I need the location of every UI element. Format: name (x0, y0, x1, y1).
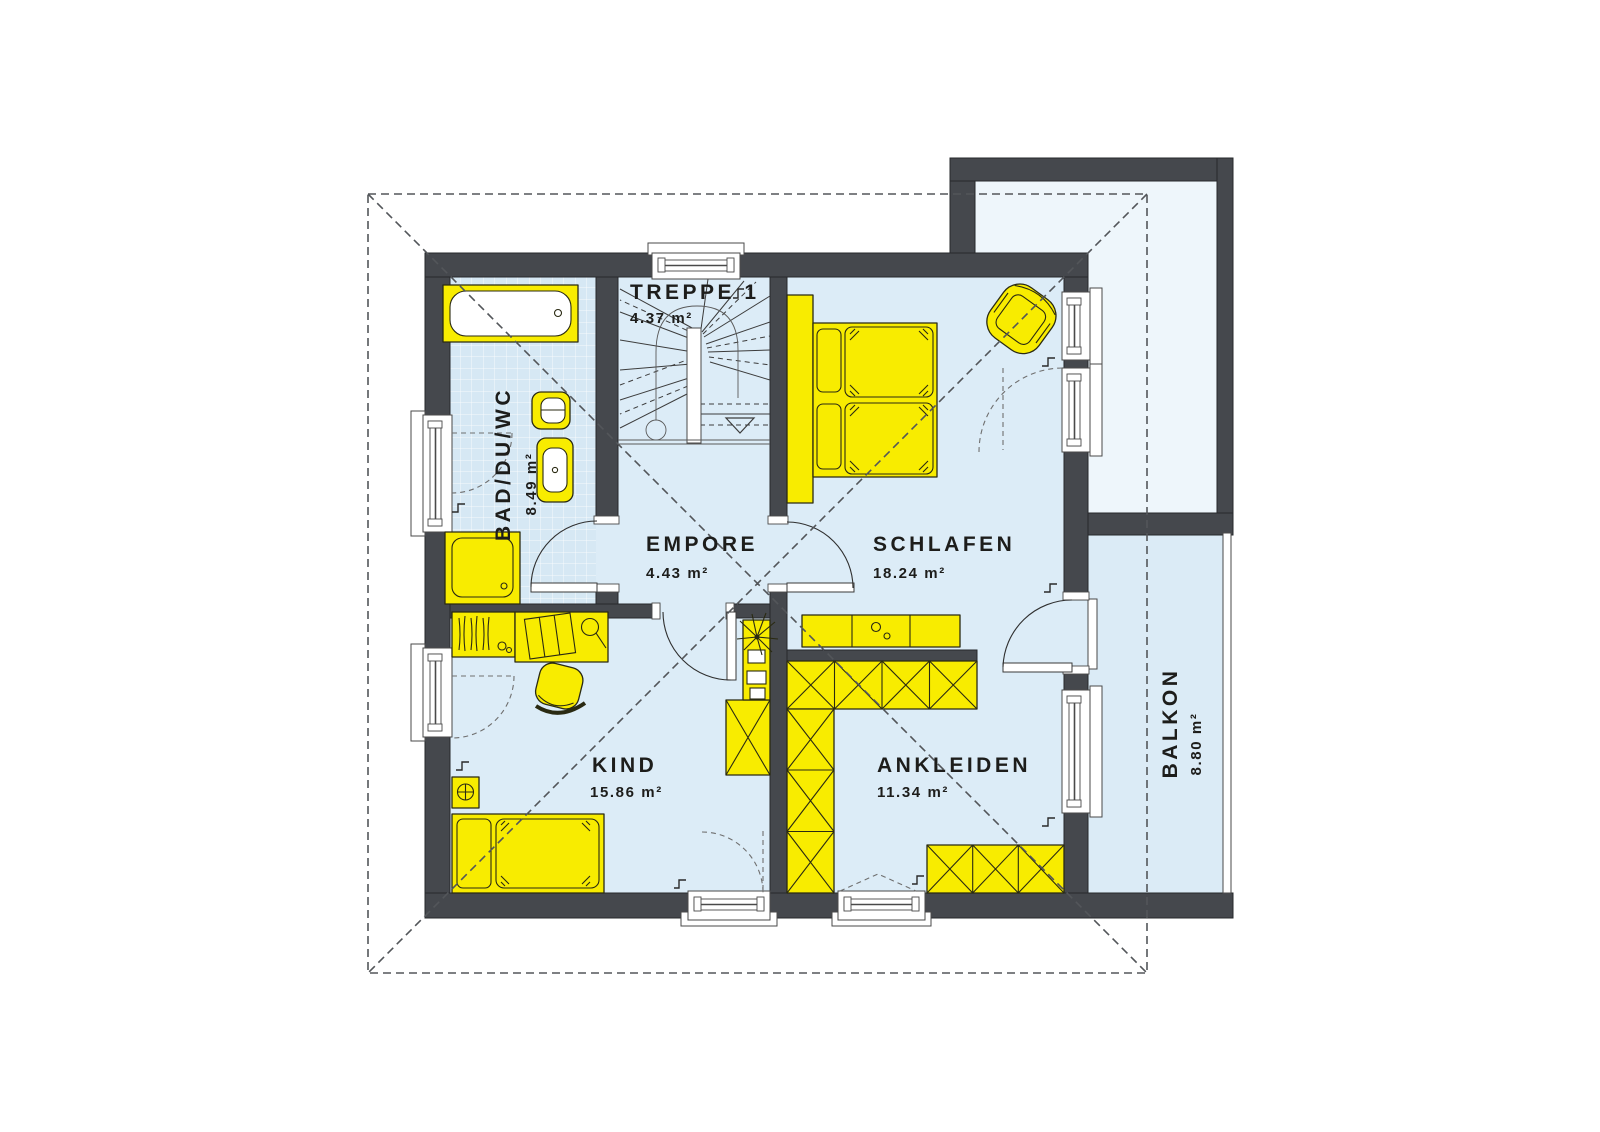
window-stairs-top (648, 243, 744, 279)
wardrobe-column-left (787, 709, 834, 893)
room-area-bad: 8.49 m² (523, 453, 540, 516)
balcony-railing (1223, 533, 1231, 893)
floor-plan-page: TREPPE 1 4.37 m² BAD/DU/WC 8.49 m² EMPOR… (0, 0, 1600, 1132)
window-bathroom-left (411, 411, 452, 536)
room-area-kind: 15.86 m² (590, 784, 663, 801)
room-area-balkon: 8.80 m² (1188, 713, 1205, 776)
sink-basin (537, 438, 573, 502)
window-ankleiden-bottom (832, 891, 931, 926)
balcony-door-sill (1088, 599, 1097, 669)
room-label-empore: EMPORE (646, 533, 758, 556)
window-ankleiden-right (1062, 686, 1102, 817)
wardrobe-row-top (787, 661, 977, 709)
shower (445, 532, 520, 604)
bathtub (443, 285, 578, 342)
bed-double (813, 323, 937, 477)
room-label-bad: BAD/DU/WC (492, 387, 515, 541)
toilet (532, 392, 570, 429)
window-schlafen-right-2 (1062, 364, 1102, 456)
floor-plan-svg: TREPPE 1 4.37 m² BAD/DU/WC 8.49 m² EMPOR… (0, 0, 1600, 1132)
room-area-ankleiden: 11.34 m² (877, 784, 949, 801)
bookshelf (452, 612, 515, 657)
room-label-ankleiden: ANKLEIDEN (877, 754, 1031, 777)
desk (515, 612, 608, 662)
wardrobe-kind (726, 700, 770, 775)
window-kind-left (411, 644, 452, 741)
side-stool (452, 777, 479, 808)
window-schlafen-right-1 (1062, 288, 1102, 364)
room-area-treppe: 4.37 m² (630, 310, 693, 327)
room-area-schlafen: 18.24 m² (873, 565, 946, 582)
window-kind-bottom (681, 891, 777, 926)
room-label-kind: KIND (592, 754, 657, 777)
bed-headboard (787, 295, 813, 503)
room-label-treppe: TREPPE 1 (630, 281, 760, 304)
room-label-balkon: BALKON (1159, 668, 1182, 779)
sideboard (802, 615, 960, 647)
room-label-schlafen: SCHLAFEN (873, 533, 1015, 556)
bed-kind (452, 814, 604, 893)
room-area-empore: 4.43 m² (646, 565, 709, 582)
stair-spine-wall (687, 328, 701, 443)
